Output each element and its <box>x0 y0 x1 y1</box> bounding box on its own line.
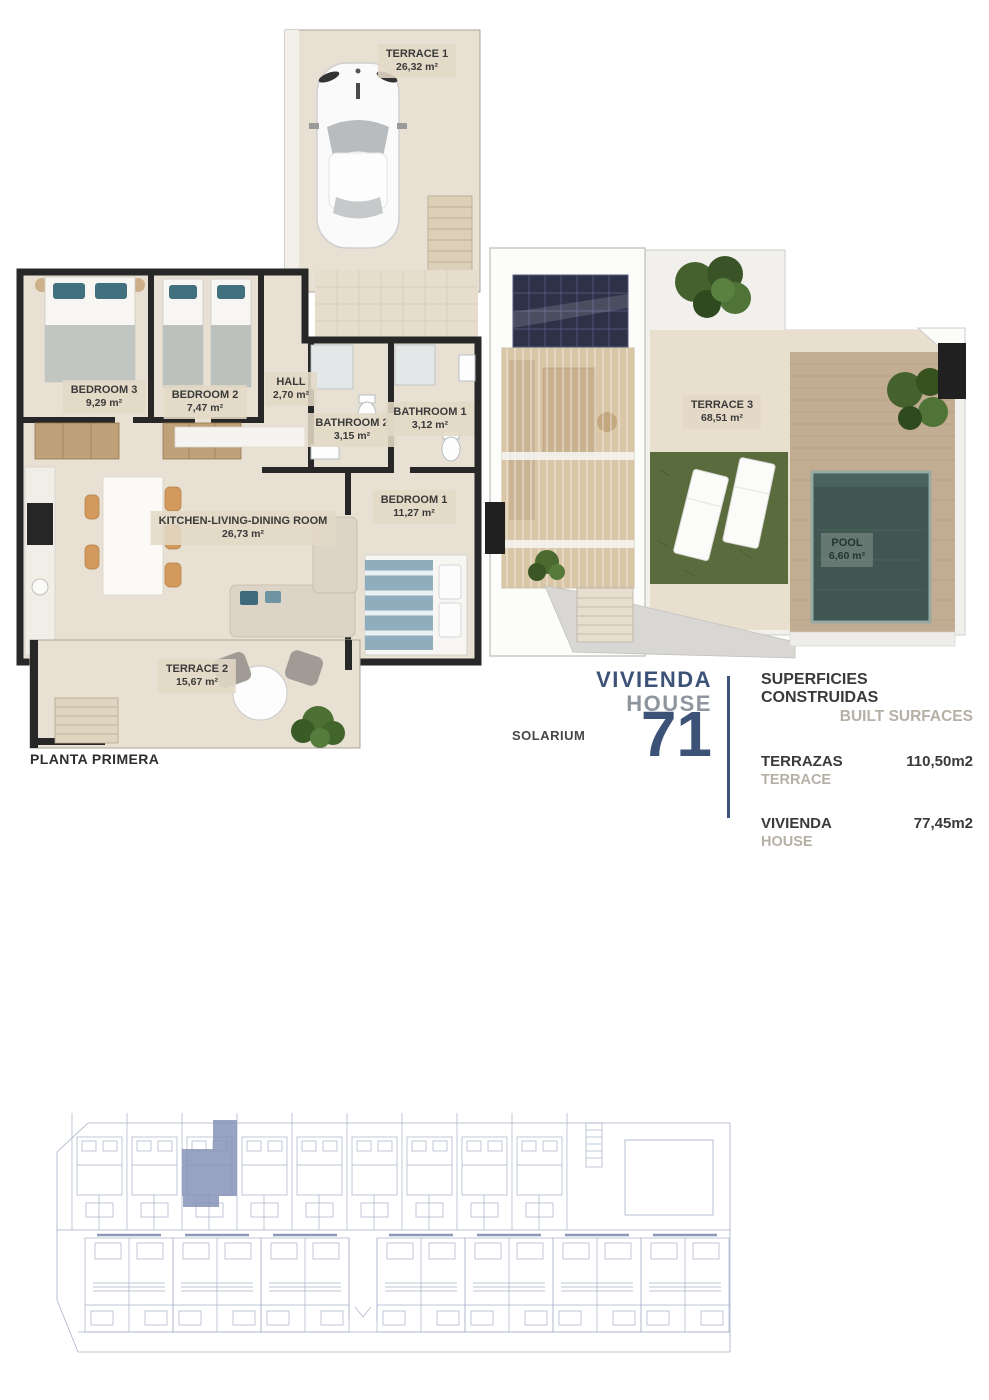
room-label-hall: HALL2,70 m² <box>265 372 317 406</box>
unit-vivienda-label: VIVIENDA <box>596 667 712 693</box>
surfaces-title-en: BUILT SURFACES <box>761 708 973 726</box>
grass-terrace <box>650 452 788 584</box>
solar-panel-icon <box>513 275 628 347</box>
house-value: 77,45m2 <box>914 815 973 832</box>
room-label-bedroom-3: BEDROOM 39,29 m² <box>63 380 146 414</box>
room-label-terrace-3: TERRACE 368,51 m² <box>683 395 761 429</box>
first-floor-title: PLANTA PRIMERA <box>30 751 159 767</box>
divider-line <box>727 676 730 818</box>
terraces-label-en: TERRACE <box>761 772 973 788</box>
room-label-bathroom-1: BATHROOM 13,12 m² <box>385 402 474 436</box>
floorplan-sheet: TERRACE 126,32 m² BEDROOM 39,29 m² BEDRO… <box>0 0 989 1400</box>
room-label-bathroom-2: BATHROOM 23,15 m² <box>307 413 396 447</box>
site-plan-highlighted-unit <box>182 1120 237 1207</box>
surfaces-row-terraces: TERRAZAS TERRACE 110,50m2 <box>761 753 973 788</box>
room-label-pool: POOL6,60 m² <box>821 533 873 567</box>
unit-number: 71 <box>641 702 712 766</box>
house-label-en: HOUSE <box>761 834 973 850</box>
room-label-terrace-2: TERRACE 215,67 m² <box>158 659 236 693</box>
room-label-terrace-1: TERRACE 126,32 m² <box>378 44 456 78</box>
room-label-kitchen-living-dining: KITCHEN-LIVING-DINING ROOM26,73 m² <box>151 511 336 545</box>
solarium-title: SOLARIUM <box>512 728 585 743</box>
solarium-plan <box>485 240 975 665</box>
built-surfaces-panel: SUPERFICIES CONSTRUIDAS BUILT SURFACES T… <box>761 671 973 850</box>
surfaces-title-es: SUPERFICIES CONSTRUIDAS <box>761 671 973 707</box>
room-label-bedroom-1: BEDROOM 111,27 m² <box>373 490 456 524</box>
site-plan <box>40 1085 750 1375</box>
surfaces-row-house: VIVIENDA HOUSE 77,45m2 <box>761 815 973 850</box>
room-label-bedroom-2: BEDROOM 27,47 m² <box>164 385 247 419</box>
car-icon <box>309 63 407 248</box>
terraces-value: 110,50m2 <box>906 753 973 770</box>
